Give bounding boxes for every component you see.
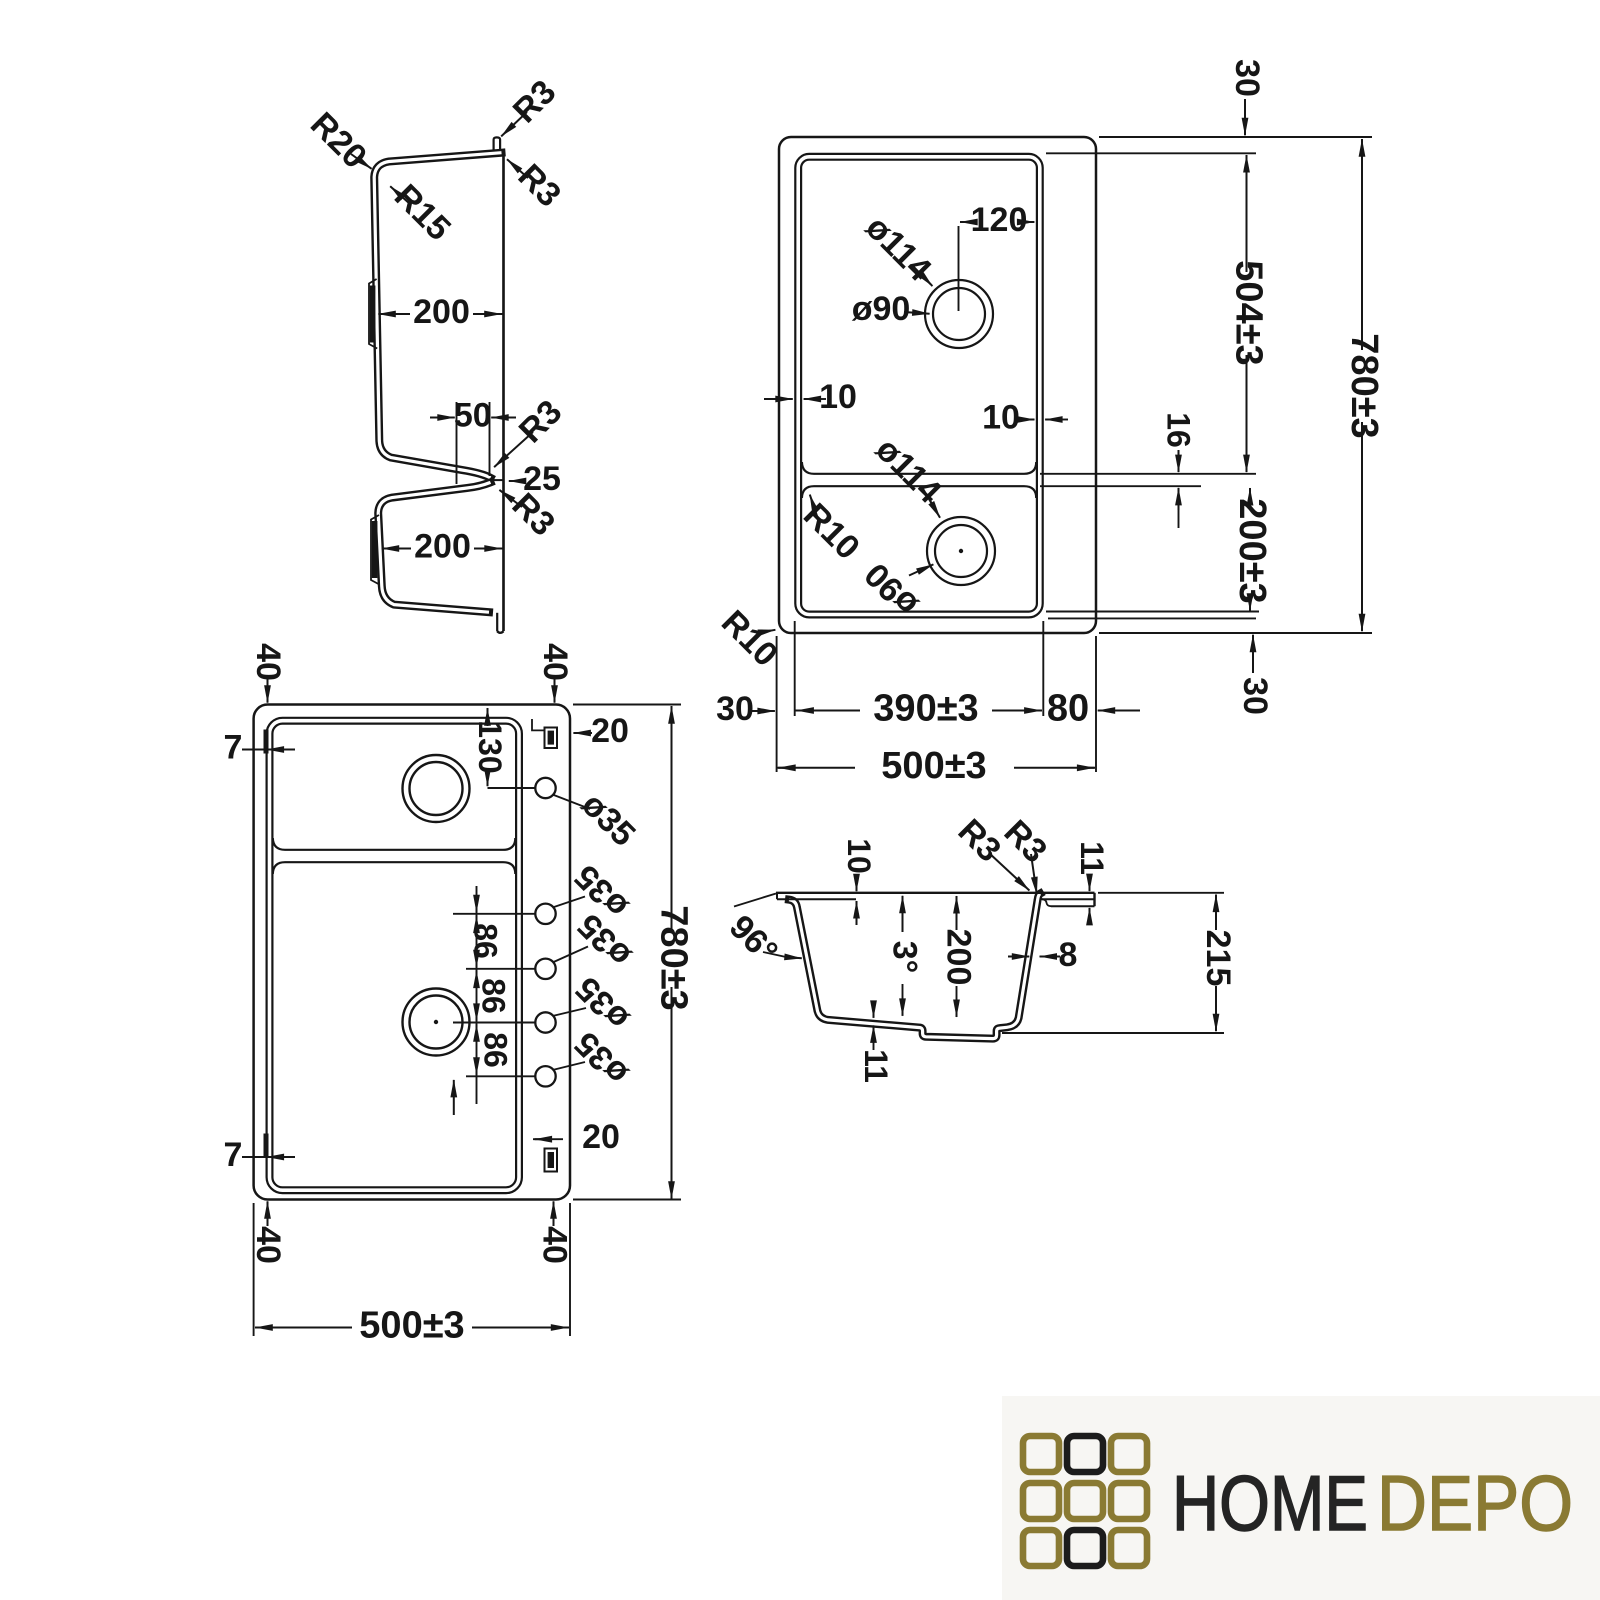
svg-text:40: 40	[536, 1226, 574, 1264]
svg-text:30: 30	[1228, 59, 1266, 97]
svg-text:16: 16	[1161, 412, 1197, 448]
svg-text:200±3: 200±3	[1231, 498, 1273, 603]
svg-text:R15: R15	[387, 177, 458, 248]
svg-text:86: 86	[468, 923, 504, 959]
svg-text:40: 40	[249, 643, 287, 681]
svg-text:R3: R3	[997, 813, 1055, 871]
svg-text:10: 10	[841, 838, 877, 874]
svg-text:7: 7	[224, 1136, 243, 1174]
svg-text:96°: 96°	[722, 908, 785, 971]
svg-text:ø114: ø114	[858, 208, 938, 288]
svg-text:200: 200	[414, 527, 471, 565]
svg-text:504±3: 504±3	[1227, 260, 1269, 365]
svg-text:ø35: ø35	[567, 1024, 635, 1092]
svg-text:ø35: ø35	[568, 969, 636, 1037]
svg-text:20: 20	[582, 1118, 620, 1156]
svg-text:10: 10	[819, 378, 857, 416]
svg-text:200: 200	[940, 929, 978, 986]
svg-text:7: 7	[224, 728, 243, 766]
svg-text:R10: R10	[714, 603, 785, 674]
svg-text:500±3: 500±3	[359, 1305, 464, 1347]
svg-text:ø35: ø35	[574, 785, 642, 853]
svg-text:HOME: HOME	[1172, 1459, 1368, 1547]
svg-text:390±3: 390±3	[873, 688, 978, 730]
svg-text:3°: 3°	[886, 941, 924, 974]
svg-text:ø90: ø90	[852, 290, 911, 328]
svg-text:86: 86	[478, 1032, 514, 1068]
svg-text:780±3: 780±3	[652, 905, 694, 1010]
svg-text:11: 11	[858, 1049, 894, 1083]
svg-text:30: 30	[716, 690, 754, 728]
svg-text:780±3: 780±3	[1343, 333, 1385, 438]
svg-text:40: 40	[536, 643, 574, 681]
svg-text:11: 11	[1074, 841, 1110, 875]
svg-text:DEPO: DEPO	[1377, 1459, 1573, 1547]
svg-text:215: 215	[1199, 930, 1237, 987]
svg-text:500±3: 500±3	[881, 745, 986, 787]
svg-text:R3: R3	[511, 157, 569, 215]
svg-text:86: 86	[476, 978, 512, 1014]
svg-text:80: 80	[1047, 688, 1089, 730]
svg-text:50: 50	[454, 396, 492, 434]
svg-text:200: 200	[413, 293, 470, 331]
svg-text:40: 40	[249, 1226, 287, 1264]
svg-text:R3: R3	[512, 393, 570, 451]
svg-text:R20: R20	[303, 105, 374, 176]
svg-text:20: 20	[591, 712, 629, 750]
svg-text:120: 120	[971, 201, 1028, 239]
svg-text:130: 130	[472, 720, 508, 773]
svg-text:8: 8	[1059, 936, 1078, 974]
svg-text:10: 10	[982, 398, 1020, 436]
svg-text:30: 30	[1236, 677, 1274, 715]
svg-text:R3: R3	[506, 73, 564, 131]
svg-text:R10: R10	[796, 496, 867, 567]
svg-text:ø35: ø35	[570, 906, 638, 974]
svg-text:ø114: ø114	[868, 430, 948, 510]
